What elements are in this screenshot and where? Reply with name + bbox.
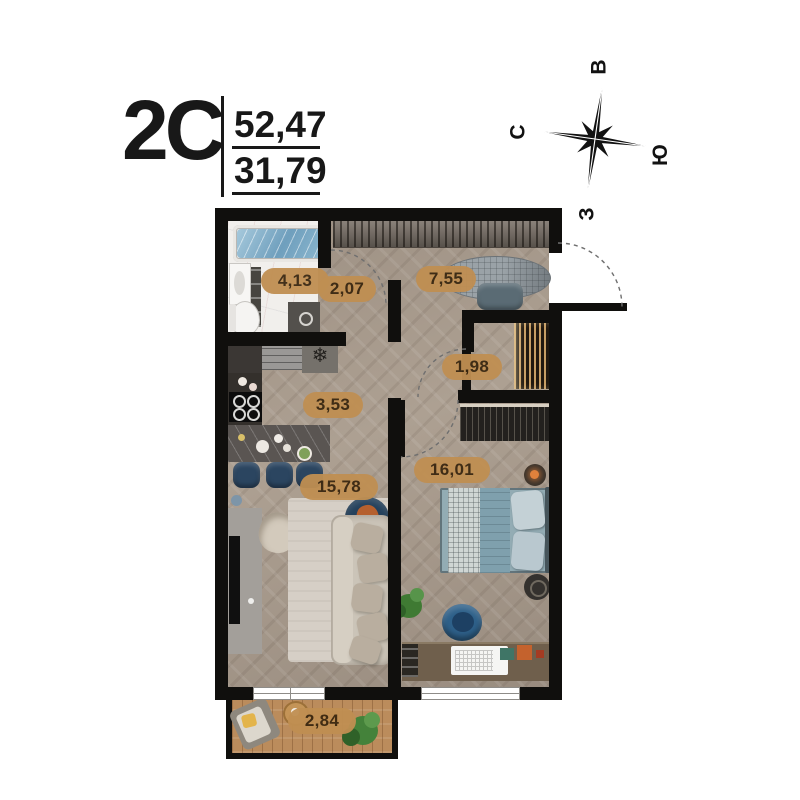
plate — [256, 440, 269, 453]
area-badge-balcony: 2,84 — [288, 708, 356, 734]
sofa-cushion — [356, 552, 390, 584]
wall-divider-upper — [388, 280, 401, 342]
total-area-underline — [232, 146, 320, 149]
wall-bathroom-right — [318, 208, 331, 268]
total-area-value: 52,47 — [234, 106, 327, 143]
window-frame-line — [422, 693, 519, 694]
laptop-keyboard — [455, 650, 493, 671]
decor-vase — [231, 495, 242, 506]
wall-bottom-c — [520, 687, 562, 700]
area-badge-living-room: 15,78 — [300, 474, 378, 500]
bathtub-water — [237, 229, 321, 258]
sofa-seat — [333, 517, 353, 663]
wall-bathroom-bottom — [215, 332, 346, 346]
pillow — [510, 489, 546, 530]
bed-throw — [448, 488, 480, 573]
compass-south-label: Ю — [649, 144, 673, 166]
kitchen-appliance — [262, 344, 302, 370]
window-frame-line — [290, 688, 291, 699]
kitchen-cup — [249, 383, 257, 391]
bedroom-wardrobe — [460, 404, 549, 441]
desk-accessory — [500, 648, 514, 660]
wall-bottom-a — [215, 687, 253, 700]
desk-accessory — [536, 650, 544, 658]
plant — [410, 588, 424, 602]
compass-west-label: З — [576, 207, 600, 220]
washing-machine-door-icon — [299, 312, 313, 326]
area-badge-bedroom: 16,01 — [414, 457, 490, 483]
toilet-tank — [229, 304, 236, 331]
side-table-decor — [530, 580, 547, 597]
wall-right-lower — [549, 310, 562, 700]
desk-shelf — [402, 644, 418, 677]
kitchen-island — [228, 425, 330, 462]
apartment-type-title: 2C — [122, 88, 221, 172]
stove-burner — [247, 408, 260, 421]
candle — [530, 470, 539, 479]
stove-burner — [233, 395, 246, 408]
plate — [238, 434, 245, 441]
desk-accessory — [517, 645, 532, 660]
area-badge-kitchen: 3,53 — [303, 392, 363, 418]
sofa-cushion — [350, 582, 383, 613]
floorplan-page: 2C 52,47 31,79 В С Ю З ❄ — [0, 0, 800, 800]
snowflake-icon: ❄ — [312, 345, 329, 367]
sink-basin — [234, 271, 245, 295]
plate — [274, 434, 283, 443]
bar-stool — [233, 462, 260, 488]
entry-wardrobe — [333, 221, 549, 248]
remote — [248, 598, 254, 604]
bedroom-window — [421, 687, 520, 700]
compass-star-icon — [528, 72, 662, 206]
area-badge-entrance-hall: 7,55 — [416, 266, 476, 292]
wall-closet-top — [462, 310, 562, 323]
living-room-window — [253, 687, 325, 700]
balcony-plant — [364, 712, 380, 728]
wall-top — [215, 208, 562, 221]
window-frame-line — [254, 693, 324, 694]
area-badge-closet: 1,98 — [442, 354, 502, 380]
stove-burner — [247, 395, 260, 408]
wall-bottom-b — [325, 687, 421, 700]
entry-bench — [477, 283, 523, 310]
living-area-value: 31,79 — [234, 152, 327, 189]
title-divider — [221, 96, 224, 197]
tv — [229, 536, 240, 624]
plate — [283, 444, 291, 452]
bedroom-door-leaf — [396, 400, 405, 457]
compass-north-label: С — [507, 124, 531, 139]
entry-door-leaf — [549, 303, 627, 311]
stove-burner — [233, 408, 246, 421]
bed-blanket — [480, 488, 510, 573]
sofa-cushion — [349, 521, 384, 555]
wall-left — [215, 208, 228, 700]
wall-right-upper — [549, 208, 562, 253]
compass-east-label: В — [588, 59, 612, 74]
desk-chair-seat — [452, 612, 474, 632]
plate — [297, 446, 312, 461]
bar-stool — [266, 462, 293, 488]
living-area-underline — [232, 192, 320, 195]
entry-door-arc — [558, 243, 622, 307]
area-badge-hallway: 2,07 — [318, 276, 376, 302]
kitchen-cup — [238, 377, 247, 386]
wall-bedroom-top — [458, 390, 562, 403]
pillow — [510, 531, 545, 572]
wall-closet-left — [462, 310, 474, 352]
closet-wardrobe — [514, 323, 549, 389]
